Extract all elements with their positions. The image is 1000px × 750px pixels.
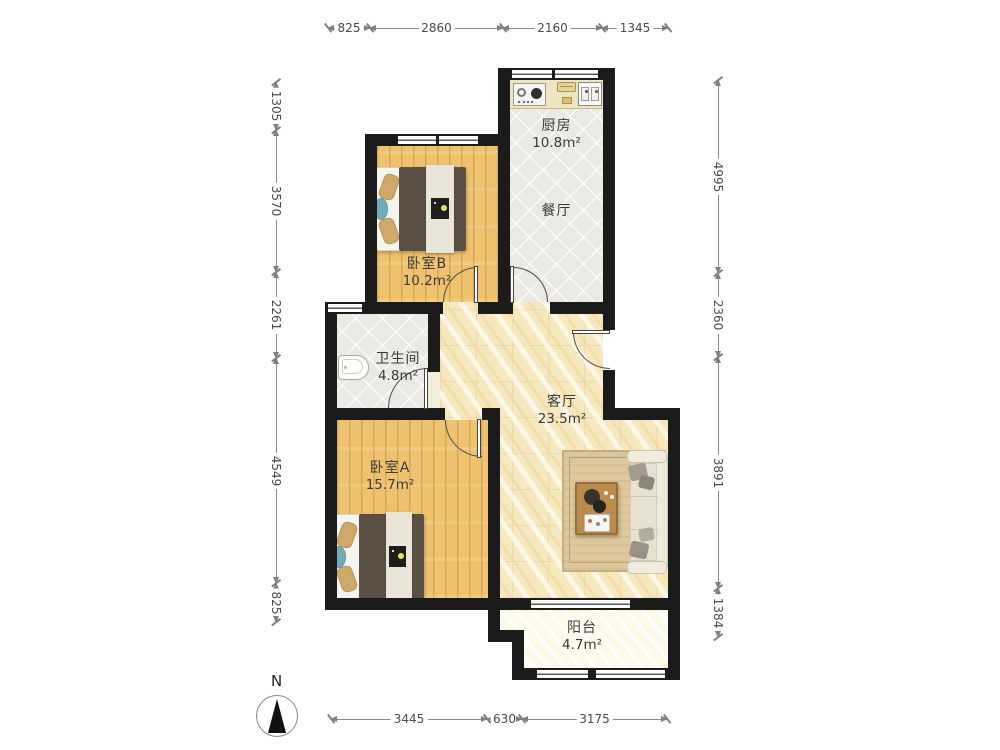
dim-right-4: 1384	[718, 588, 719, 637]
window-mullion	[552, 68, 555, 80]
dim-label: 2160	[534, 21, 571, 35]
window-mullion	[588, 668, 596, 680]
dim-left-5: 825	[276, 583, 277, 622]
room-label-balcony: 阳台 4.7m²	[512, 620, 652, 654]
balcony-sliding-door	[524, 598, 637, 610]
sofa-armrest	[627, 561, 667, 574]
room-name: 客厅	[502, 394, 622, 411]
wall	[478, 302, 513, 314]
dim-top-2: 2860	[370, 28, 503, 29]
wall	[482, 408, 500, 420]
balcony-window	[537, 668, 665, 680]
bowl-icon	[593, 500, 606, 513]
wall	[325, 598, 524, 610]
dim-right-3: 3891	[718, 357, 719, 588]
sofa-armrest	[627, 450, 667, 463]
room-label-bedroom-a: 卧室A 15.7m²	[330, 460, 450, 494]
bedroom-a-door-leaf	[477, 419, 481, 458]
wall	[325, 408, 445, 420]
wall	[362, 302, 443, 314]
dim-left-2: 3570	[276, 130, 277, 272]
dim-label: 825	[269, 588, 283, 617]
slider-end-block	[630, 599, 637, 609]
tray-icon	[584, 514, 610, 532]
dim-label: 2261	[269, 297, 283, 334]
bedside-device	[431, 198, 449, 219]
kitchen-counter	[510, 80, 603, 109]
room-area: 23.5m²	[502, 411, 622, 428]
room-name: 卧室B	[377, 256, 477, 273]
dim-left-4: 4549	[276, 358, 277, 583]
room-area: 10.8m²	[510, 135, 603, 152]
wall	[603, 68, 615, 330]
room-area: 4.8m²	[350, 368, 446, 385]
dim-right-1: 4995	[718, 80, 719, 273]
compass-north-icon	[268, 699, 286, 733]
room-name: 阳台	[512, 620, 652, 637]
dim-top-1: 825	[328, 28, 370, 29]
wall	[512, 668, 537, 680]
bed-bedroom-b	[371, 167, 466, 251]
dim-label: 3891	[711, 454, 725, 491]
dim-bottom-2: 630	[487, 719, 522, 720]
dim-label: 2860	[418, 21, 455, 35]
room-name: 卫生间	[350, 351, 446, 368]
dim-top-3: 2160	[503, 28, 602, 29]
room-label-bedroom-b: 卧室B 10.2m²	[377, 256, 477, 290]
dining-door-leaf	[510, 266, 514, 303]
sofa-cushion	[638, 527, 655, 542]
floor-plan: 厨房 10.8m² 餐厅 卧室B 10.2m² 卫生间 4.8m² 客厅 23.…	[0, 0, 1000, 750]
sofa-cushion	[629, 540, 650, 559]
dim-label: 3175	[576, 712, 613, 726]
bed-bedroom-a	[329, 514, 424, 600]
sofa-backrest	[656, 452, 668, 572]
room-area: 15.7m²	[330, 477, 450, 494]
dim-left-1: 1305	[276, 82, 277, 130]
sink-icon	[578, 82, 602, 106]
dim-left-3: 2261	[276, 272, 277, 358]
dim-label: 630	[490, 712, 519, 726]
wall	[550, 302, 615, 314]
dim-label: 1384	[711, 594, 725, 631]
compass-north-label: N	[271, 672, 282, 690]
wall	[365, 134, 377, 302]
bathroom-window	[328, 302, 362, 314]
room-name: 卧室A	[330, 460, 450, 477]
dim-label: 3445	[391, 712, 428, 726]
dim-top-4: 1345	[602, 28, 668, 29]
dim-label: 4995	[711, 158, 725, 195]
kitchen-window	[512, 68, 598, 80]
wall	[668, 408, 680, 680]
room-label-kitchen: 厨房 10.8m²	[510, 118, 603, 152]
room-label-living: 客厅 23.5m²	[502, 394, 622, 428]
dim-bottom-3: 3175	[522, 719, 667, 720]
dim-label: 1305	[269, 88, 283, 125]
room-area: 4.7m²	[512, 637, 652, 654]
dim-bottom-1: 3445	[331, 719, 487, 720]
dim-right-2: 2360	[718, 273, 719, 357]
wall	[498, 68, 510, 314]
room-name: 厨房	[510, 118, 603, 135]
dim-label: 1345	[617, 21, 654, 35]
range-hood-vent	[562, 97, 572, 104]
dim-label: 2360	[711, 297, 725, 334]
dim-label: 3570	[269, 183, 283, 220]
coffee-table	[575, 482, 618, 535]
entry-door-leaf	[572, 330, 610, 334]
dim-label: 4549	[269, 452, 283, 489]
sofa	[627, 450, 668, 574]
bedside-device	[389, 546, 406, 567]
range-hood-icon	[557, 82, 576, 92]
room-label-bathroom: 卫生间 4.8m²	[350, 351, 446, 385]
window-mullion	[436, 134, 439, 146]
wall	[665, 668, 680, 680]
room-name: 餐厅	[510, 203, 603, 220]
room-area: 10.2m²	[377, 273, 477, 290]
slider-end-block	[524, 599, 531, 609]
wall	[637, 598, 680, 610]
wall	[478, 134, 498, 146]
dim-label: 825	[335, 21, 364, 35]
room-label-dining: 餐厅	[510, 203, 603, 220]
stove-icon	[513, 83, 546, 106]
